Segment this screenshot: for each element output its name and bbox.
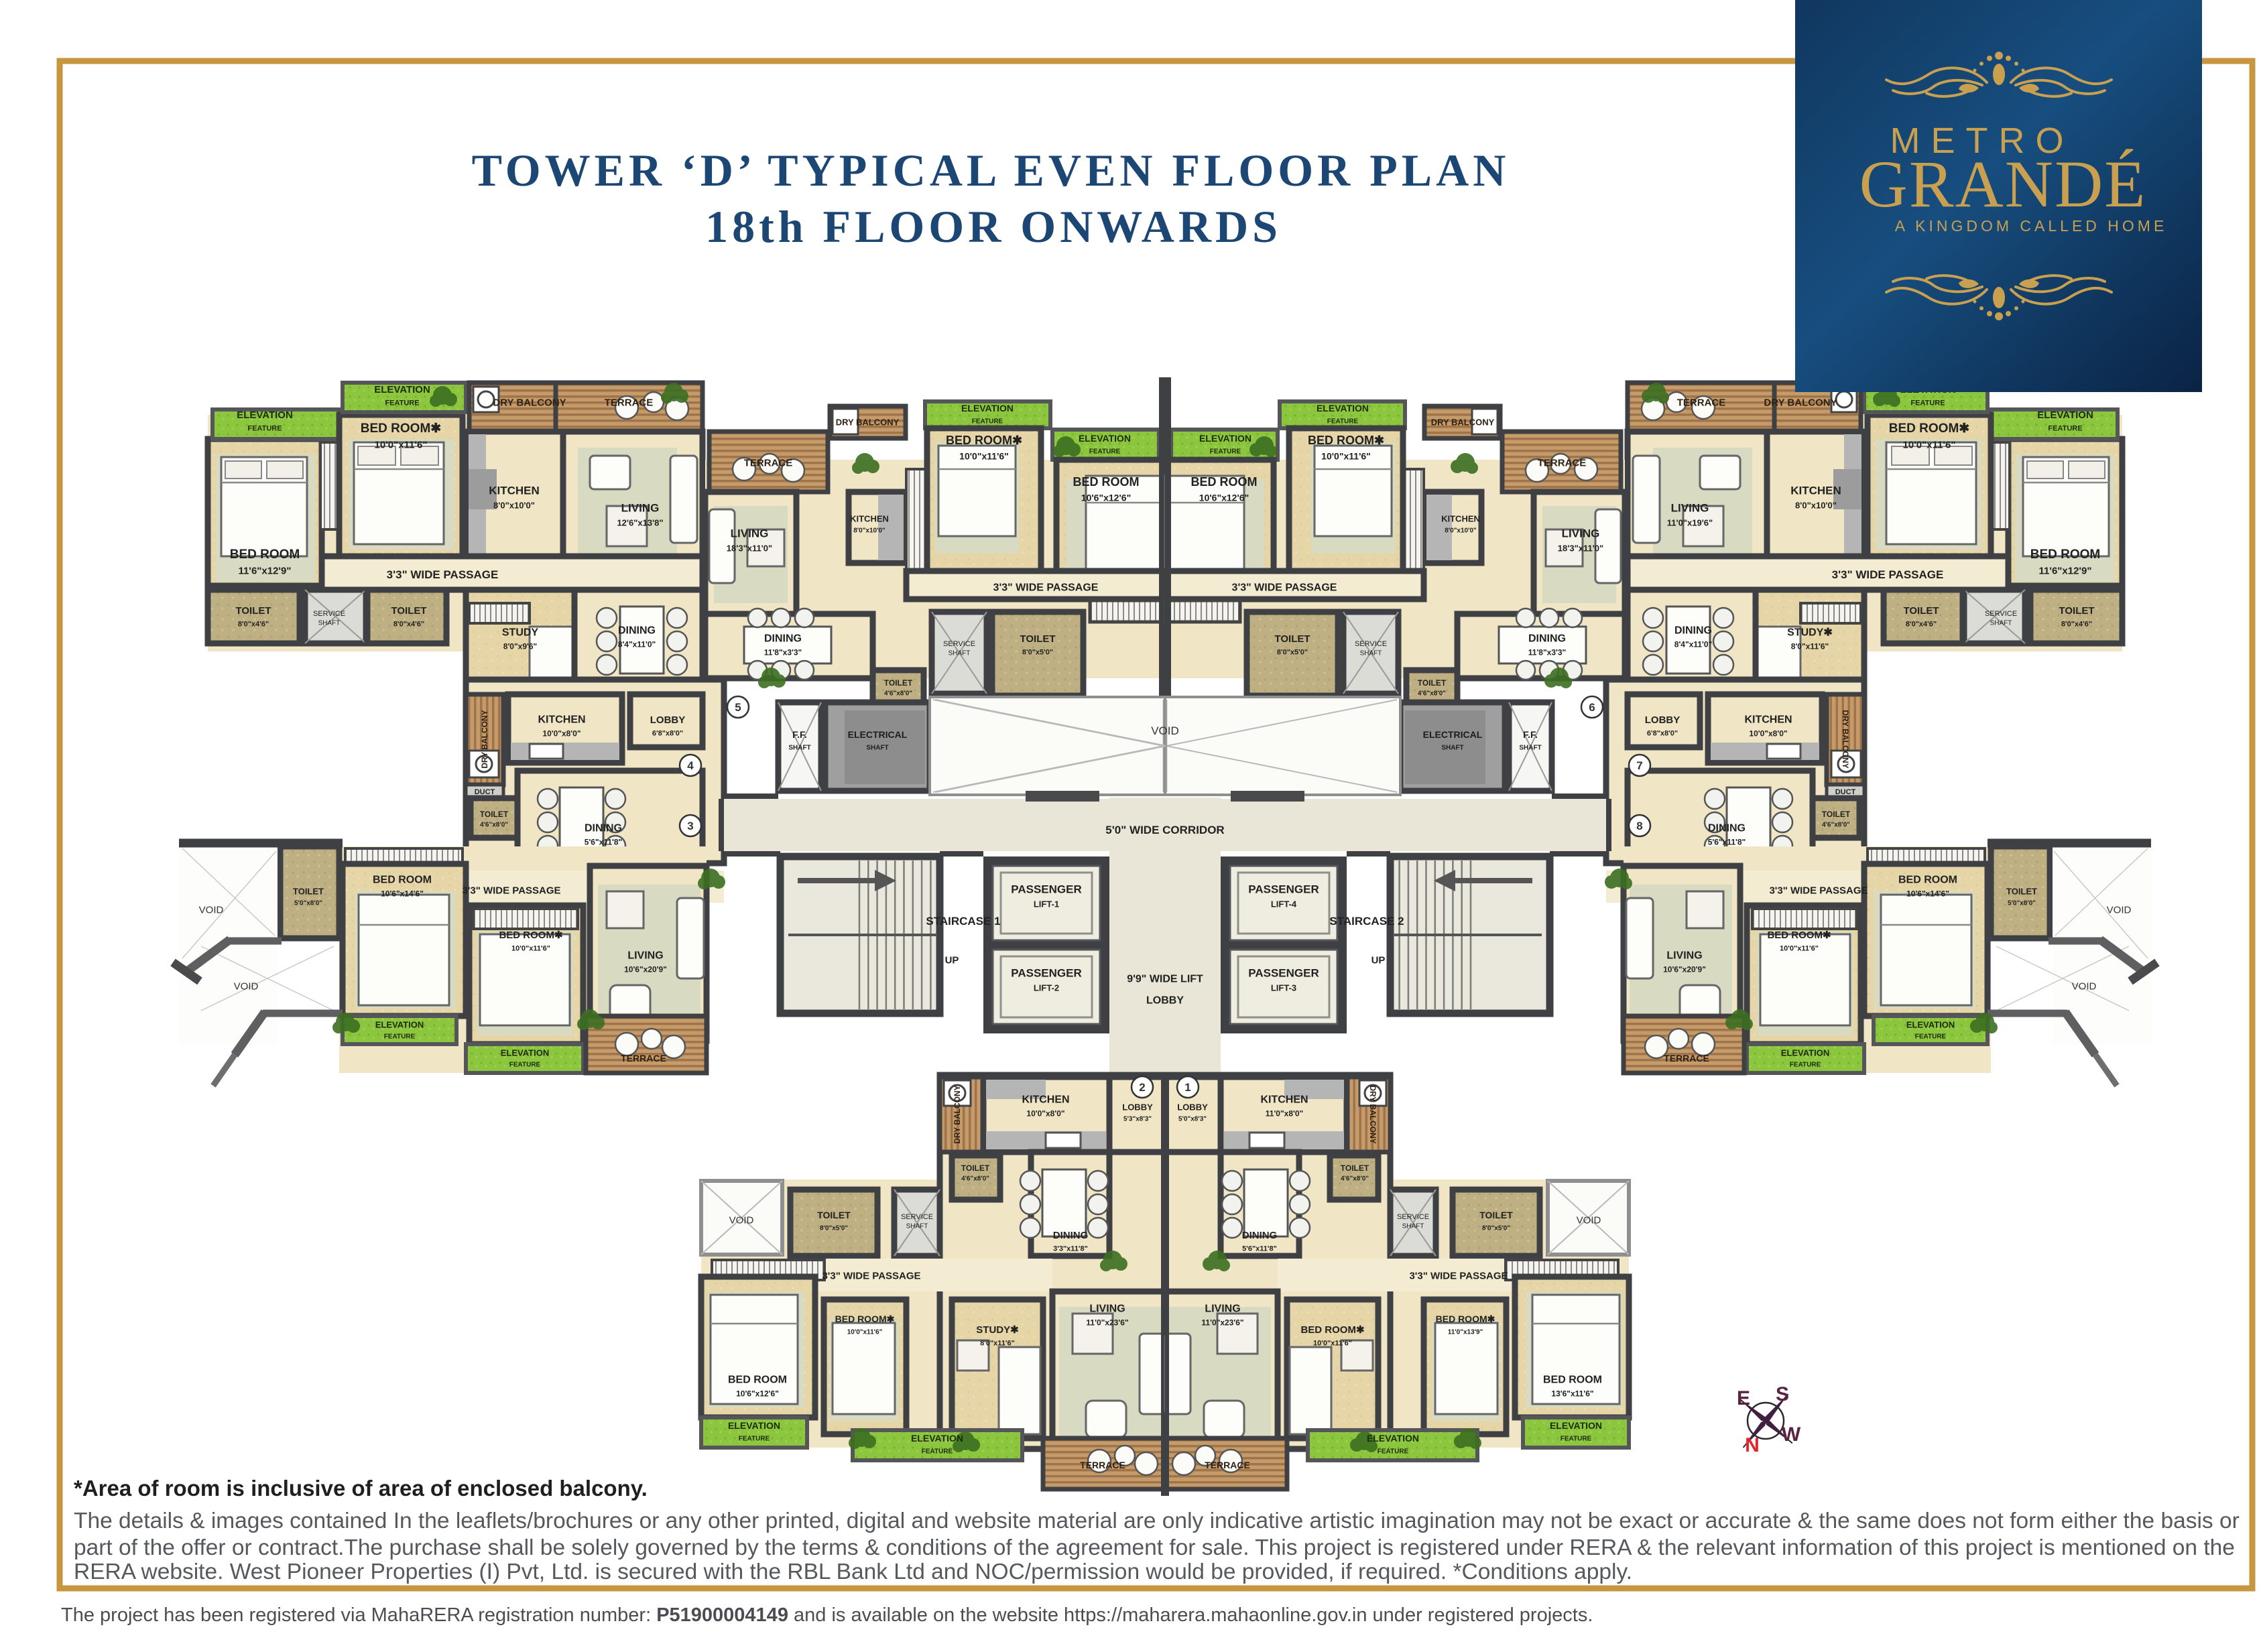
svg-text:S: S	[1776, 1383, 1789, 1405]
svg-text:TERRACE: TERRACE	[1205, 1460, 1250, 1470]
svg-text:DRY BALCONY: DRY BALCONY	[1368, 1085, 1378, 1143]
svg-text:part of the offer or contract.: part of the offer or contract.The purcha…	[74, 1535, 2235, 1560]
svg-text:VOID: VOID	[199, 904, 224, 915]
svg-text:VOID: VOID	[729, 1214, 754, 1226]
svg-text:VOID: VOID	[2072, 980, 2097, 992]
svg-text:7: 7	[1636, 759, 1642, 772]
svg-text:A KINGDOM CALLED HOME: A KINGDOM CALLED HOME	[1895, 217, 2168, 235]
svg-text:3'3" WIDE PASSAGE: 3'3" WIDE PASSAGE	[1832, 568, 1944, 581]
svg-text:LOBBY: LOBBY	[1146, 995, 1184, 1007]
svg-text:3: 3	[687, 820, 693, 832]
svg-text:The details & images contained: The details & images contained In the le…	[74, 1509, 2240, 1533]
svg-text:UP: UP	[1371, 954, 1386, 966]
svg-text:TERRACE: TERRACE	[605, 397, 654, 408]
svg-text:DRY BALCONY: DRY BALCONY	[953, 1085, 962, 1143]
svg-text:5: 5	[735, 701, 741, 714]
svg-text:TERRACE: TERRACE	[744, 457, 793, 468]
svg-text:VOID: VOID	[234, 980, 259, 992]
svg-text:3'3" WIDE PASSAGE: 3'3" WIDE PASSAGE	[1769, 885, 1868, 896]
svg-text:DRY BALCONY: DRY BALCONY	[1431, 418, 1495, 428]
svg-text:UP: UP	[945, 954, 959, 966]
svg-text:STAIRCASE 2: STAIRCASE 2	[1329, 915, 1404, 928]
svg-text:TERRACE: TERRACE	[1677, 397, 1726, 408]
svg-text:The project has been registere: The project has been registered via Maha…	[61, 1604, 1593, 1626]
svg-text:TERRACE: TERRACE	[1080, 1460, 1125, 1470]
svg-text:DUCT: DUCT	[1835, 788, 1856, 796]
svg-text:2: 2	[1139, 1081, 1145, 1094]
svg-text:1: 1	[1184, 1081, 1190, 1094]
svg-text:DRY BALCONY: DRY BALCONY	[1841, 710, 1850, 768]
svg-text:TERRACE: TERRACE	[1538, 457, 1587, 468]
svg-text:6: 6	[1589, 701, 1595, 714]
svg-text:STAIRCASE 1: STAIRCASE 1	[926, 915, 1000, 928]
svg-text:VOID: VOID	[1577, 1214, 1601, 1226]
svg-text:3'3" WIDE PASSAGE: 3'3" WIDE PASSAGE	[822, 1270, 920, 1281]
svg-text:8: 8	[1636, 820, 1642, 832]
svg-text:DRY BALCONY: DRY BALCONY	[480, 710, 489, 768]
svg-text:DRY BALCONY: DRY BALCONY	[493, 397, 566, 408]
svg-text:9'9" WIDE LIFT: 9'9" WIDE LIFT	[1127, 974, 1203, 985]
svg-text:*Area of room is inclusive of: *Area of room is inclusive of area of en…	[74, 1476, 648, 1501]
svg-text:3'3" WIDE PASSAGE: 3'3" WIDE PASSAGE	[993, 582, 1099, 594]
svg-text:4: 4	[687, 759, 694, 772]
svg-text:TERRACE: TERRACE	[1664, 1053, 1709, 1064]
svg-text:18th FLOOR ONWARDS: 18th FLOOR ONWARDS	[705, 201, 1282, 252]
svg-text:E: E	[1737, 1387, 1750, 1409]
svg-text:3'3" WIDE PASSAGE: 3'3" WIDE PASSAGE	[1232, 582, 1337, 594]
svg-text:TOWER ‘D’ TYPICAL EVEN FLOOR P: TOWER ‘D’ TYPICAL EVEN FLOOR PLAN	[472, 145, 1510, 196]
svg-text:VOID: VOID	[2107, 904, 2132, 915]
svg-text:3'3" WIDE PASSAGE: 3'3" WIDE PASSAGE	[387, 568, 499, 581]
svg-text:TERRACE: TERRACE	[621, 1053, 666, 1064]
svg-text:5'0" WIDE CORRIDOR: 5'0" WIDE CORRIDOR	[1105, 824, 1224, 836]
svg-text:N: N	[1745, 1434, 1760, 1456]
svg-text:DRY BALCONY: DRY BALCONY	[1764, 397, 1837, 408]
svg-text:3'3" WIDE PASSAGE: 3'3" WIDE PASSAGE	[462, 885, 560, 896]
svg-text:GRANDÉ: GRANDÉ	[1859, 147, 2147, 221]
svg-text:3'3" WIDE PASSAGE: 3'3" WIDE PASSAGE	[1409, 1270, 1508, 1281]
svg-text:RERA website. West Pioneer Pro: RERA website. West Pioneer Properties (I…	[74, 1560, 1632, 1584]
svg-text:VOID: VOID	[1151, 724, 1179, 737]
svg-text:DUCT: DUCT	[475, 788, 495, 796]
svg-text:W: W	[1782, 1423, 1801, 1446]
svg-text:DRY BALCONY: DRY BALCONY	[836, 418, 900, 428]
